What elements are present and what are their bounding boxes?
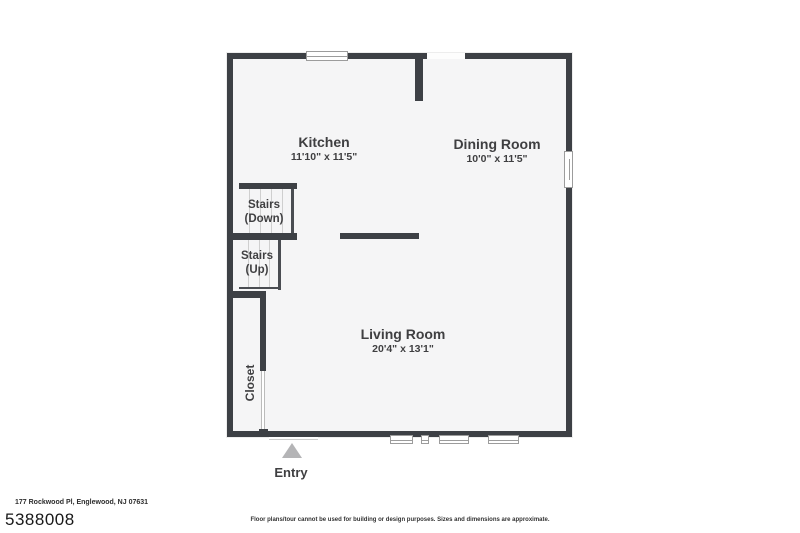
wall-stairs-up-right xyxy=(278,240,281,290)
entry-arrow-icon xyxy=(282,443,302,458)
wall-stairs-divider xyxy=(233,233,297,240)
wall-closet-bottom-stub xyxy=(259,429,268,437)
room-dimensions: 20'4" x 13'1" xyxy=(361,343,446,356)
room-label-dining-room: Dining Room 10'0" x 11'5" xyxy=(453,136,540,166)
entry-label: Entry xyxy=(274,465,307,480)
room-name: Dining Room xyxy=(453,136,540,153)
closet-door-opening xyxy=(261,371,265,429)
window-bottom-3 xyxy=(439,435,469,444)
stairs-up-line1: Stairs xyxy=(241,249,273,263)
wall-closet-top xyxy=(233,291,266,298)
opening-top-dining xyxy=(427,53,465,59)
window-bottom-2 xyxy=(421,435,429,444)
floor-plan: Kitchen 11'10" x 11'5" Dining Room 10'0"… xyxy=(227,53,572,437)
room-name: Living Room xyxy=(361,326,446,343)
disclaimer-text: Floor plans/tour cannot be used for buil… xyxy=(0,517,800,523)
floor-plan-page: Kitchen 11'10" x 11'5" Dining Room 10'0"… xyxy=(0,0,800,533)
window-bottom-4 xyxy=(488,435,519,444)
stairs-up-label: Stairs (Up) xyxy=(241,249,273,277)
room-label-kitchen: Kitchen 11'10" x 11'5" xyxy=(291,134,357,164)
window-top-kitchen xyxy=(306,51,348,61)
room-dimensions: 11'10" x 11'5" xyxy=(291,151,357,164)
window-right-dining xyxy=(564,151,573,188)
wall-stairs-up-bottom xyxy=(239,287,281,289)
wall-mid-partition xyxy=(340,233,419,239)
window-bottom-1 xyxy=(390,435,413,444)
closet-label: Closet xyxy=(243,365,257,402)
wall-kitchen-dining-partition xyxy=(415,59,423,101)
stairs-down-line1: Stairs xyxy=(245,198,284,212)
wall-stairs-down-right xyxy=(291,189,294,233)
room-dimensions: 10'0" x 11'5" xyxy=(453,153,540,166)
stairs-down-line2: (Down) xyxy=(245,212,284,226)
wall-closet-right xyxy=(260,298,266,371)
stairs-down-label: Stairs (Down) xyxy=(245,198,284,226)
room-label-living-room: Living Room 20'4" x 13'1" xyxy=(361,326,446,356)
wall-stairs-down-top xyxy=(239,183,297,189)
property-address: 177 Rockwood Pl, Englewood, NJ 07631 xyxy=(15,499,148,506)
stairs-up-line2: (Up) xyxy=(241,263,273,277)
room-name: Kitchen xyxy=(291,134,357,151)
